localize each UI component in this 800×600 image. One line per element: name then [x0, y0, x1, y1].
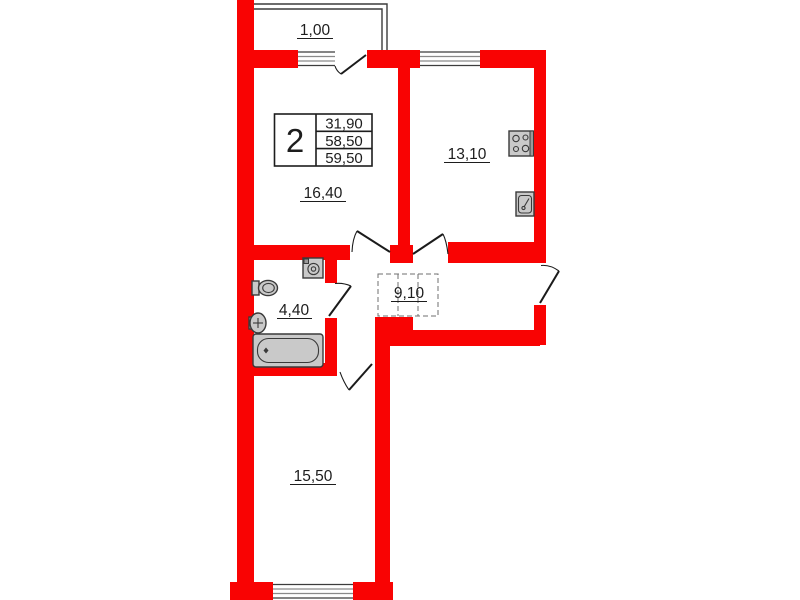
washing-machine-icon — [303, 258, 323, 278]
window-bedroom-icon — [273, 585, 353, 599]
kitchen-area-label: 13,10 — [448, 146, 487, 163]
area-total-with-balcony: 59,50 — [325, 150, 363, 167]
walls — [230, 0, 546, 600]
bathroom-area-label: 4,40 — [279, 302, 310, 319]
bedroom-area-label: 15,50 — [294, 468, 333, 485]
stove-icon — [509, 131, 534, 156]
wall-hall-bottom — [390, 330, 540, 346]
wall-bath-right-upper — [325, 257, 337, 283]
floor-plan-canvas: 1,00 16,40 13,10 4,40 9,10 15,50 2 31,90… — [0, 0, 800, 600]
area-living-total: 31,90 — [325, 116, 363, 133]
wall-bath-right-lower — [325, 318, 337, 363]
door-living-room-icon — [352, 231, 390, 252]
kitchen-sink-icon — [516, 192, 534, 216]
living-room-area-label: 16,40 — [304, 185, 343, 202]
wall-right-upper — [534, 50, 546, 263]
door-entrance-icon — [540, 265, 559, 303]
washbasin-icon — [249, 313, 266, 333]
door-bedroom-icon — [340, 364, 372, 390]
window-living-room-icon — [298, 52, 335, 66]
wall-living-kitchen-divider — [398, 68, 410, 250]
wall-top-b — [367, 50, 420, 68]
summary-table: 2 31,90 58,50 59,50 — [275, 114, 373, 167]
wall-top-a — [254, 50, 298, 68]
wall-divider-base — [390, 245, 413, 263]
door-bathroom-icon — [329, 283, 351, 316]
floor-plan-page: 1,00 16,40 13,10 4,40 9,10 15,50 2 31,90… — [0, 0, 800, 600]
wall-kitchen-bottom — [448, 242, 534, 263]
door-balcony-icon — [335, 55, 366, 74]
wall-bottom-left — [230, 582, 273, 600]
toilet-icon — [252, 280, 278, 295]
rooms-count-value: 2 — [286, 122, 304, 159]
window-kitchen-icon — [420, 52, 480, 66]
door-kitchen-icon — [413, 234, 448, 254]
hallway-area-label: 9,10 — [394, 285, 425, 302]
wall-bottom-right — [353, 582, 393, 600]
balcony-area-label: 1,00 — [300, 22, 331, 39]
bathtub-icon — [253, 334, 323, 367]
wall-bedroom-right — [375, 337, 390, 583]
area-apartment: 58,50 — [325, 133, 363, 150]
